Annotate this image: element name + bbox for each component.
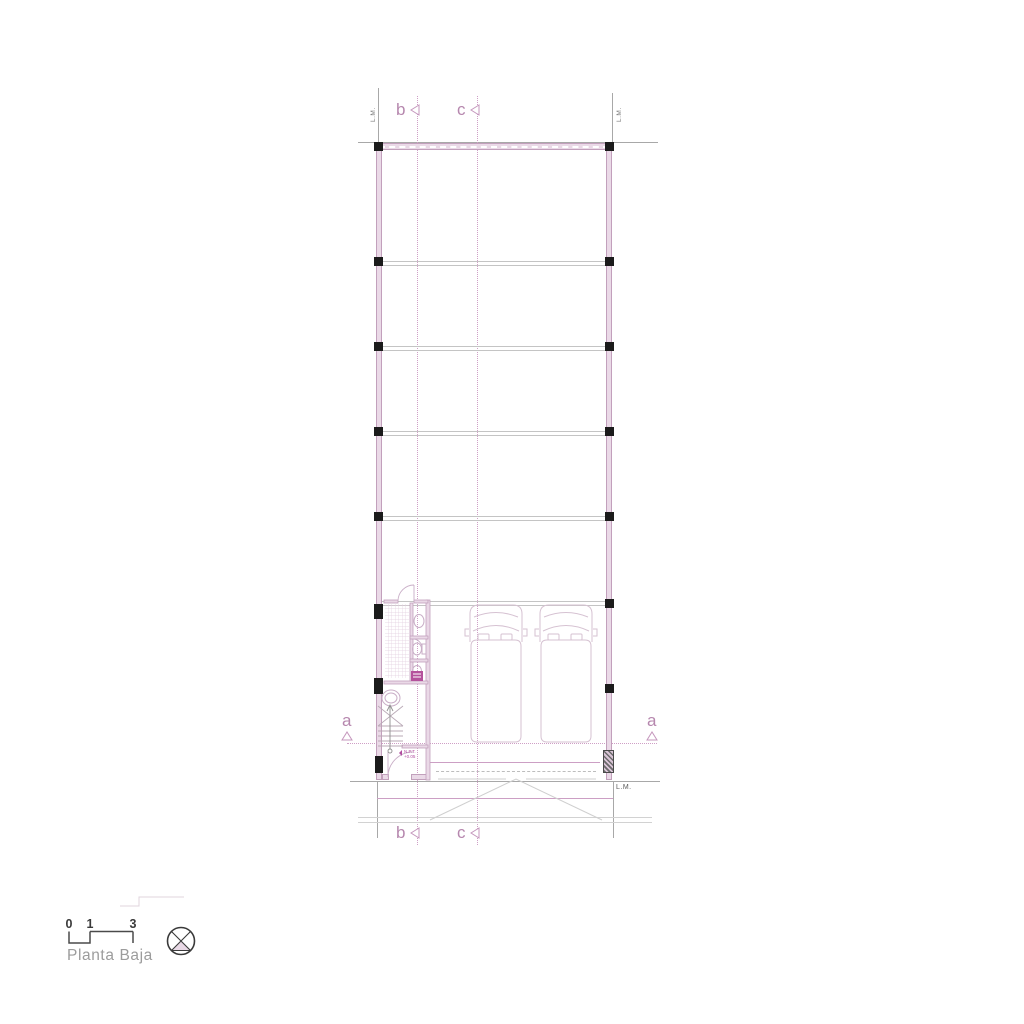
scale-tick-0: 0 bbox=[62, 917, 76, 931]
marker-b-top-icon bbox=[411, 105, 419, 115]
marker-c-top-icon bbox=[471, 105, 479, 115]
driveway-ramp bbox=[430, 779, 602, 820]
ramp-diagonals bbox=[430, 779, 602, 820]
marker-c-bottom-icon bbox=[471, 828, 479, 838]
north-symbol-icon bbox=[168, 928, 195, 955]
stair-winders bbox=[378, 706, 403, 726]
marker-a-right-icon bbox=[647, 732, 657, 740]
marker-b-bottom-icon bbox=[411, 828, 419, 838]
door-top bbox=[398, 585, 414, 601]
scale-tick-1: 1 bbox=[83, 917, 97, 931]
plan-drawing-overlay: N.P.T. +0.05 bbox=[0, 0, 1024, 1024]
washer bbox=[411, 671, 423, 681]
car-2 bbox=[535, 605, 597, 742]
npt-label-2: +0.05 bbox=[404, 754, 416, 759]
car-1 bbox=[465, 605, 527, 742]
sink bbox=[414, 615, 424, 628]
service-core: N.P.T. +0.05 bbox=[378, 585, 430, 780]
grid-marker-icons bbox=[342, 105, 657, 838]
scale-tick-3: 3 bbox=[126, 917, 140, 931]
section-profile-line bbox=[120, 897, 184, 906]
scale-bar bbox=[69, 932, 133, 944]
stair-treads bbox=[378, 726, 403, 746]
direction-origin bbox=[388, 749, 392, 753]
tiled-floor bbox=[385, 604, 409, 678]
toilet-tank bbox=[422, 644, 426, 654]
toilet bbox=[413, 643, 422, 655]
plan-title: Planta Baja bbox=[67, 947, 153, 965]
laundry-tub-inner bbox=[385, 693, 397, 703]
floor-plan-canvas: L.M. L.M. b c b c a a L.M. bbox=[0, 0, 1024, 1024]
parked-cars bbox=[465, 605, 597, 742]
marker-a-left-icon bbox=[342, 732, 352, 740]
staircase bbox=[378, 706, 403, 746]
